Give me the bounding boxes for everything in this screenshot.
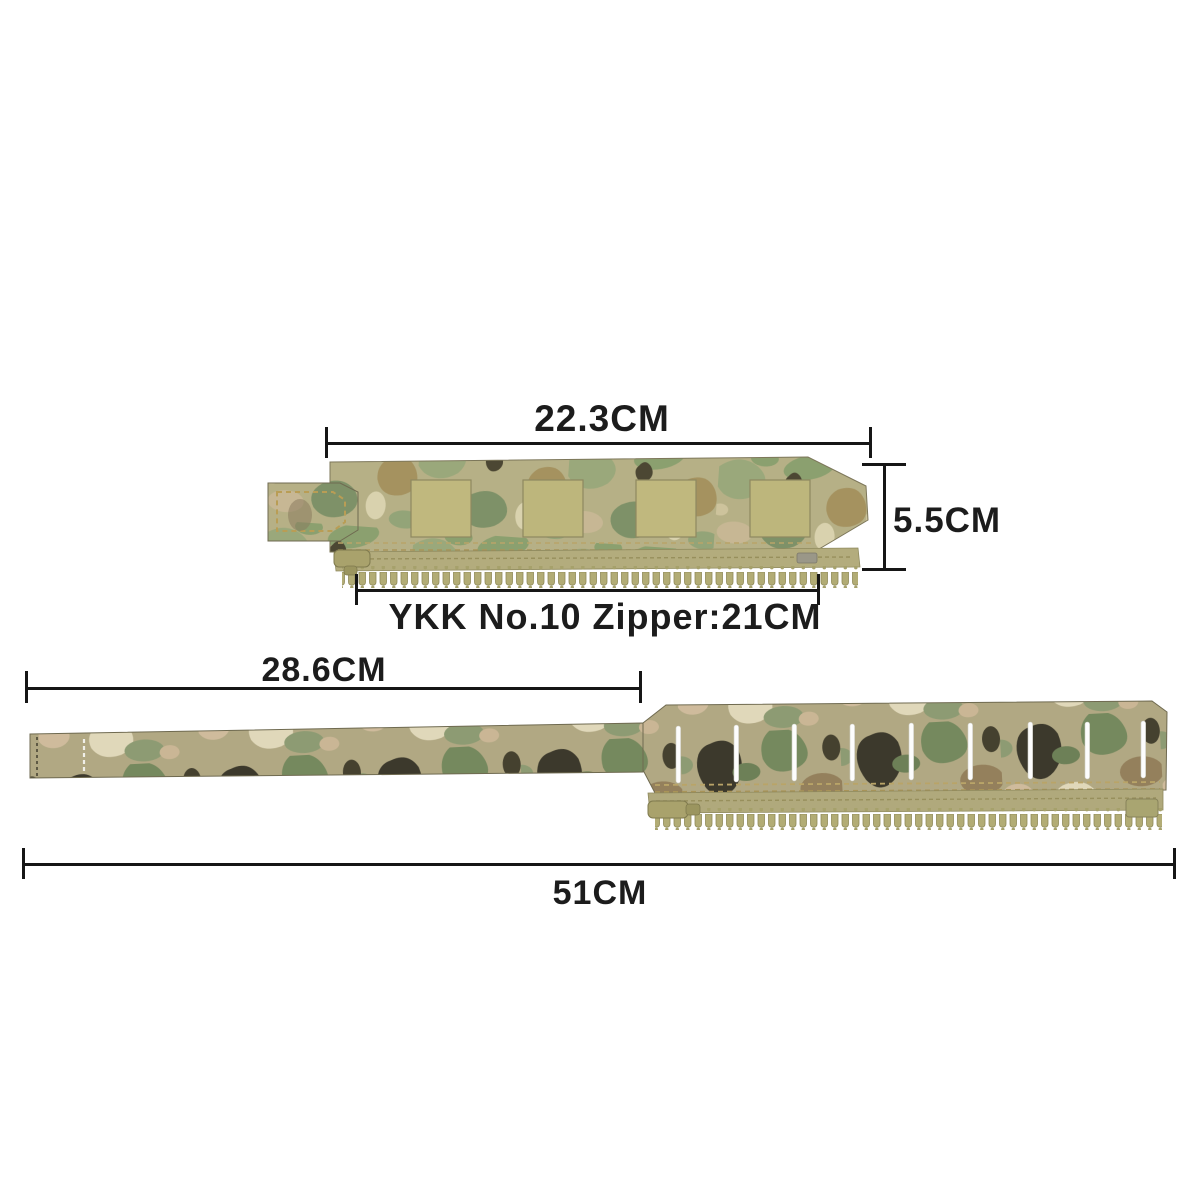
dimension-label-panel-height: 5.5CM: [893, 501, 1001, 541]
dimension-tick: [325, 427, 328, 458]
dimension-tick: [355, 574, 358, 605]
zipper-stop: [797, 553, 817, 563]
zipper-stop: [1126, 799, 1158, 817]
zipper-teeth: [655, 808, 1162, 830]
dimension-line: [325, 442, 872, 445]
camo-strap: [30, 723, 643, 778]
dimension-line: [25, 687, 642, 690]
bottom-extended-strap: [30, 701, 1167, 830]
zipper-teeth: [342, 566, 858, 588]
dimension-line: [355, 589, 820, 592]
dimension-line: [883, 464, 886, 571]
dimension-label-total-length: 51CM: [553, 874, 648, 913]
dimension-line: [22, 863, 1176, 866]
dimension-tick: [862, 568, 906, 571]
dimension-tick: [862, 463, 906, 466]
dimension-tick: [639, 671, 642, 703]
camo-tab: [268, 483, 358, 541]
dimension-tick: [1173, 848, 1176, 879]
dimension-tick: [22, 848, 25, 879]
top-zipper-panel: [268, 457, 868, 588]
product-dimension-diagram: 22.3CM 5.5CM YKK No.10 Zipper:21CM 28.6C…: [0, 0, 1200, 1200]
dimension-label-zipper: YKK No.10 Zipper:21CM: [388, 596, 821, 638]
dimension-tick: [25, 671, 28, 703]
dimension-label-strap-length: 28.6CM: [261, 651, 386, 690]
dimension-tick: [869, 427, 872, 458]
dimension-label-top-width: 22.3CM: [534, 398, 670, 440]
